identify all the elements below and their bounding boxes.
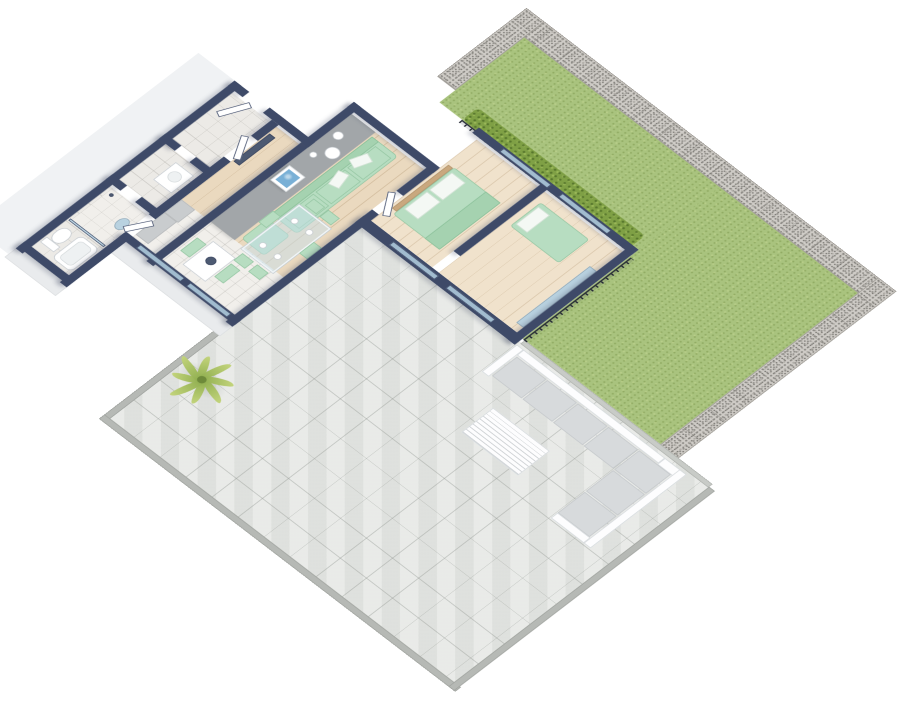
floorplan-render-stage <box>0 0 900 720</box>
